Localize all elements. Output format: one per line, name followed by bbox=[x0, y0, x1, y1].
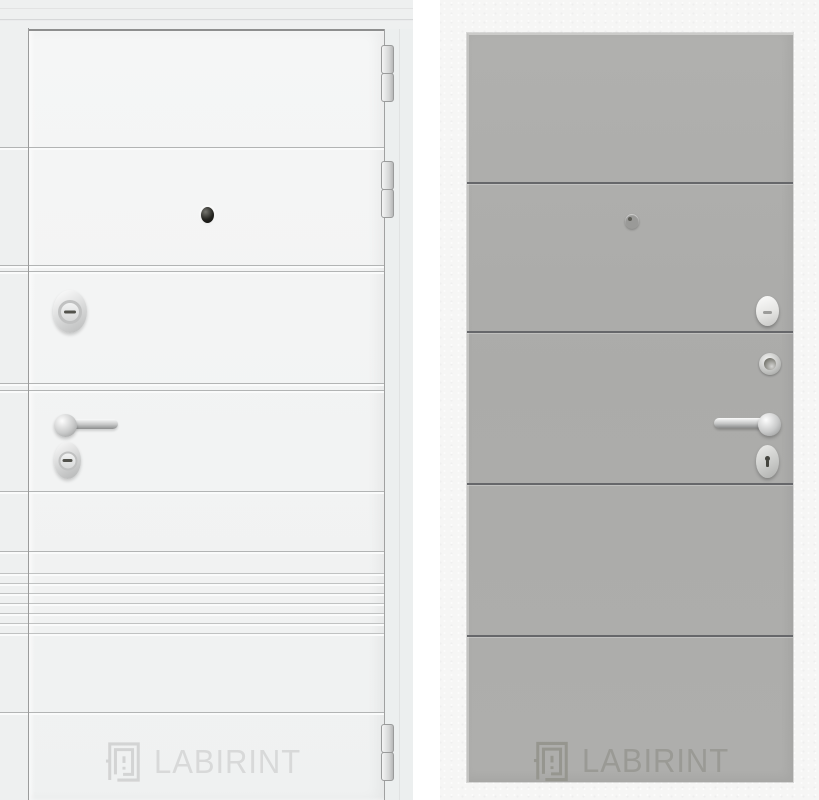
hinge-icon bbox=[381, 45, 394, 102]
hinge-knuckle bbox=[381, 161, 394, 190]
labirint-wordmark: LABIRINT bbox=[582, 738, 729, 784]
labirint-logo-icon bbox=[533, 740, 571, 783]
thumbturn-icon bbox=[756, 296, 779, 326]
keyhole-escutcheon-icon bbox=[756, 445, 779, 478]
hinge-icon bbox=[381, 161, 394, 218]
hinge-knuckle bbox=[381, 73, 394, 102]
door-right-edge bbox=[384, 29, 385, 800]
groove-line bbox=[0, 265, 384, 268]
key-slot bbox=[63, 459, 73, 462]
wall-trim-line bbox=[0, 8, 413, 9]
photo-divider bbox=[413, 0, 440, 800]
left-door-photo: LABIRINT bbox=[0, 0, 413, 800]
lock-cylinder-ring bbox=[58, 451, 77, 470]
white-door-leaf bbox=[29, 29, 384, 800]
grey-door-panel bbox=[467, 33, 793, 782]
labirint-logo-icon bbox=[105, 740, 143, 784]
lock-cylinder-ring bbox=[58, 300, 82, 324]
key-slot bbox=[64, 310, 76, 313]
handle-rose bbox=[758, 413, 781, 436]
panel-seam-line bbox=[467, 182, 793, 184]
groove-line bbox=[0, 491, 384, 494]
panel-seam-line bbox=[467, 635, 793, 637]
decor-stripe-band bbox=[0, 566, 384, 638]
hinge-knuckle bbox=[381, 45, 394, 74]
groove-line bbox=[0, 551, 384, 554]
wall-trim-line bbox=[0, 19, 413, 21]
labirint-logo: LABIRINT bbox=[533, 738, 739, 784]
door-product-image: LABIRINT bbox=[0, 0, 819, 800]
right-door-photo: LABIRINT bbox=[413, 0, 819, 800]
peephole-icon bbox=[201, 207, 214, 223]
groove-line bbox=[0, 271, 384, 274]
door-left-edge bbox=[28, 28, 29, 800]
peephole-icon bbox=[625, 214, 639, 229]
panel-seam-line bbox=[467, 331, 793, 333]
jamb-line bbox=[399, 29, 400, 800]
night-latch-icon bbox=[759, 353, 781, 375]
handle-rose bbox=[54, 414, 77, 437]
hinge-knuckle bbox=[381, 189, 394, 218]
key-cylinder-icon bbox=[54, 442, 81, 479]
keyhole-slot bbox=[766, 460, 769, 467]
panel-seam-line bbox=[467, 483, 793, 485]
security-escutcheon-icon bbox=[53, 290, 87, 333]
groove-line bbox=[0, 383, 384, 386]
labirint-wordmark: LABIRINT bbox=[154, 739, 301, 785]
groove-line bbox=[0, 712, 384, 715]
groove-line bbox=[0, 147, 384, 150]
hinge-knuckle bbox=[381, 752, 394, 781]
labirint-logo: LABIRINT bbox=[105, 739, 311, 785]
groove-line bbox=[0, 390, 384, 393]
hinge-icon bbox=[381, 724, 394, 781]
hinge-knuckle bbox=[381, 724, 394, 753]
